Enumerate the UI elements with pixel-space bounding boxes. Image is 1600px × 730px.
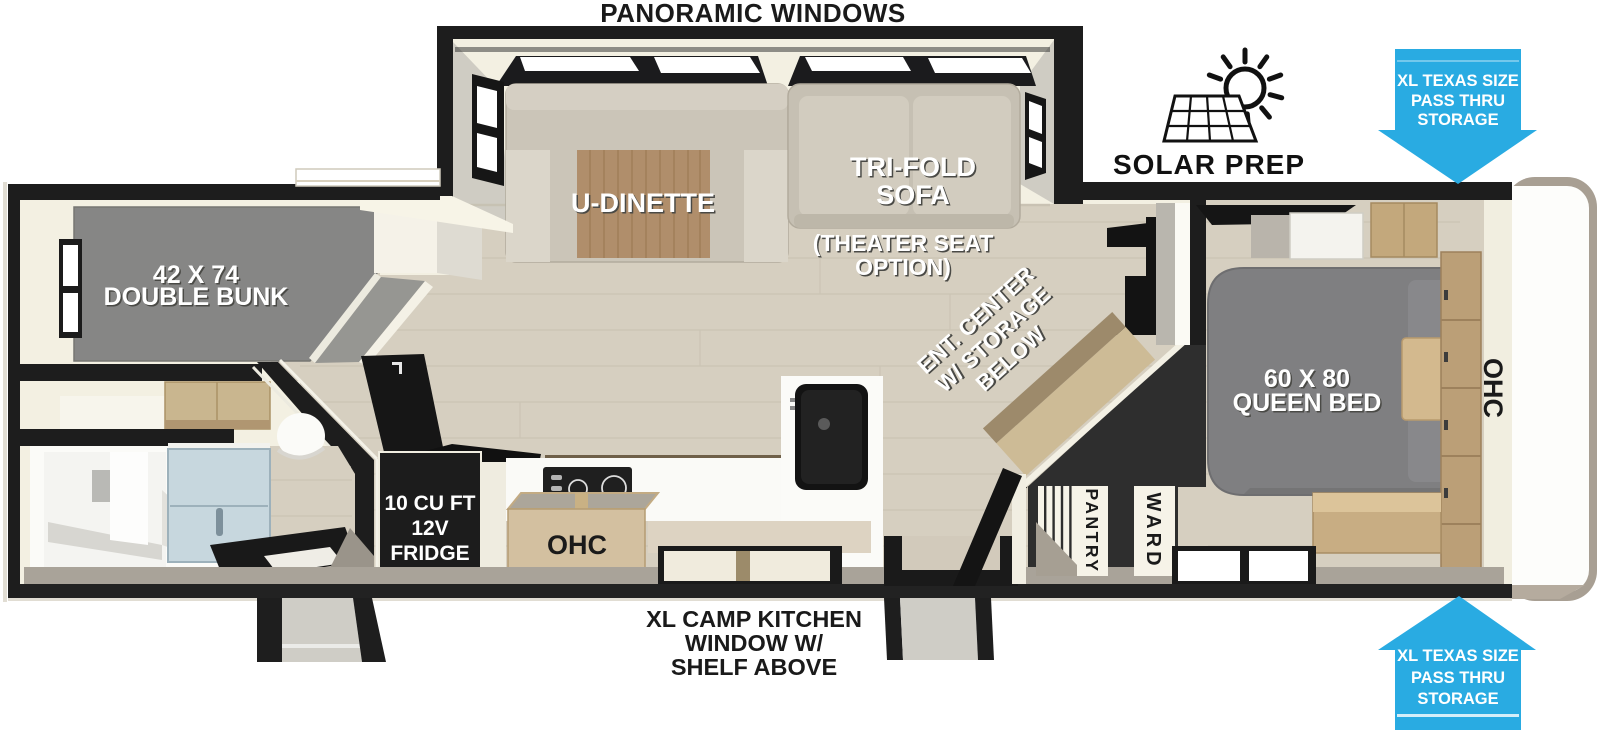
svg-text:XL TEXAS SIZE: XL TEXAS SIZE xyxy=(1397,72,1519,90)
svg-text:10 CU FT: 10 CU FT xyxy=(384,492,475,515)
svg-text:FRIDGE: FRIDGE xyxy=(390,542,469,565)
svg-text:XL CAMP KITCHEN: XL CAMP KITCHEN xyxy=(646,606,862,632)
svg-text:STORAGE: STORAGE xyxy=(1417,111,1498,129)
svg-text:OPTION): OPTION) xyxy=(855,254,951,280)
svg-text:TRI-FOLD: TRI-FOLD xyxy=(850,152,976,182)
svg-text:SHELF ABOVE: SHELF ABOVE xyxy=(671,654,837,680)
svg-text:12V: 12V xyxy=(411,517,448,540)
svg-text:WARD: WARD xyxy=(1142,492,1164,569)
svg-text:STORAGE: STORAGE xyxy=(1417,690,1498,708)
svg-text:OHC: OHC xyxy=(1478,358,1508,418)
svg-text:PANTRY: PANTRY xyxy=(1082,489,1102,574)
svg-text:OHC: OHC xyxy=(547,530,607,560)
svg-text:SOLAR PREP: SOLAR PREP xyxy=(1113,149,1305,180)
svg-text:PANORAMIC WINDOWS: PANORAMIC WINDOWS xyxy=(600,0,906,28)
svg-text:SOFA: SOFA xyxy=(876,180,950,210)
svg-text:PASS THRU: PASS THRU xyxy=(1411,92,1505,110)
svg-text:U-DINETTE: U-DINETTE xyxy=(571,188,715,218)
svg-text:QUEEN BED: QUEEN BED xyxy=(1233,389,1382,417)
svg-text:DOUBLE BUNK: DOUBLE BUNK xyxy=(104,283,289,311)
svg-text:XL TEXAS SIZE: XL TEXAS SIZE xyxy=(1397,647,1519,665)
svg-text:WINDOW W/: WINDOW W/ xyxy=(685,630,824,656)
svg-text:(THEATER SEAT: (THEATER SEAT xyxy=(813,230,994,256)
svg-text:PASS THRU: PASS THRU xyxy=(1411,669,1505,687)
